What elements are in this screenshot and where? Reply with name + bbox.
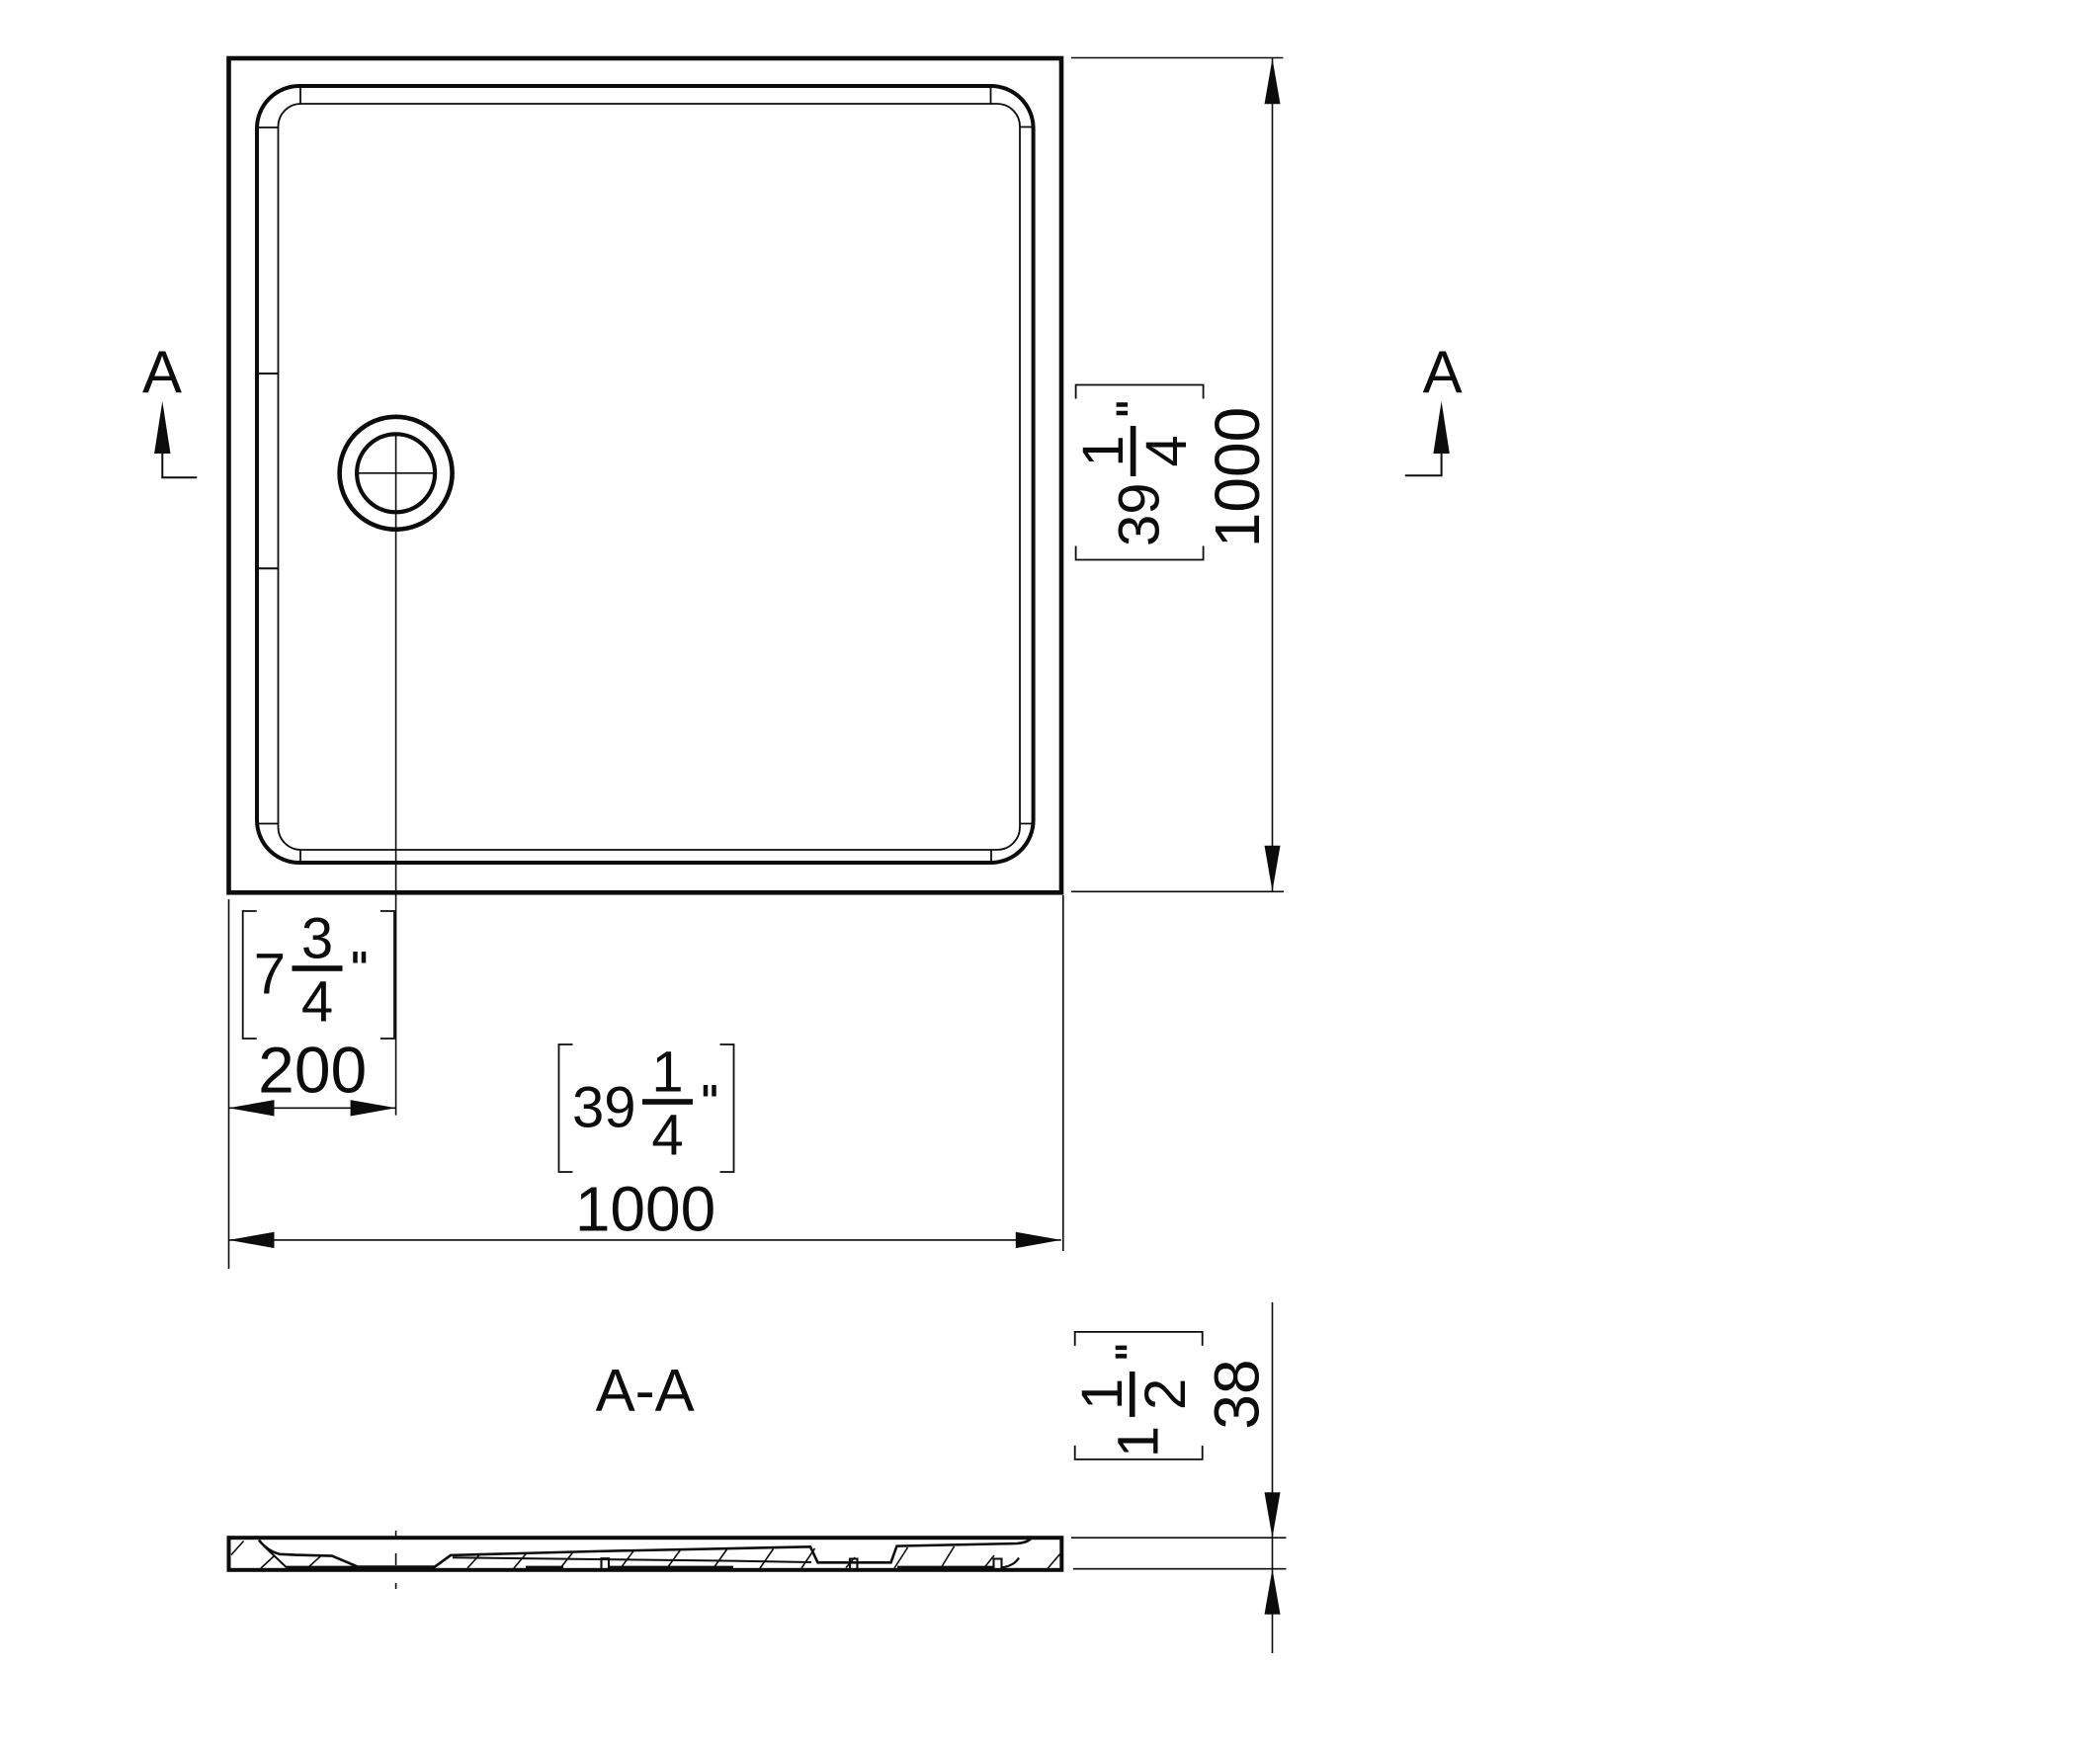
svg-text:1: 1 (1071, 435, 1135, 466)
svg-text:1: 1 (651, 1041, 683, 1105)
svg-text:A: A (142, 339, 182, 405)
svg-text:1000: 1000 (1202, 407, 1273, 547)
svg-text:A: A (1423, 339, 1463, 405)
svg-text:2: 2 (1134, 1378, 1198, 1410)
svg-text:200: 200 (258, 1034, 367, 1107)
svg-text:7: 7 (254, 943, 286, 1007)
svg-text:4: 4 (301, 970, 333, 1035)
svg-text:39: 39 (572, 1076, 636, 1140)
svg-text:1: 1 (1070, 1378, 1134, 1410)
svg-text:4: 4 (651, 1104, 683, 1168)
svg-text:A-A: A-A (596, 1358, 695, 1424)
svg-text:3: 3 (301, 907, 333, 971)
svg-text:4: 4 (1134, 435, 1199, 466)
svg-text:39: 39 (1107, 483, 1171, 547)
svg-text:1000: 1000 (575, 1174, 715, 1245)
svg-text:1: 1 (1106, 1426, 1170, 1458)
svg-text:38: 38 (1202, 1359, 1273, 1429)
